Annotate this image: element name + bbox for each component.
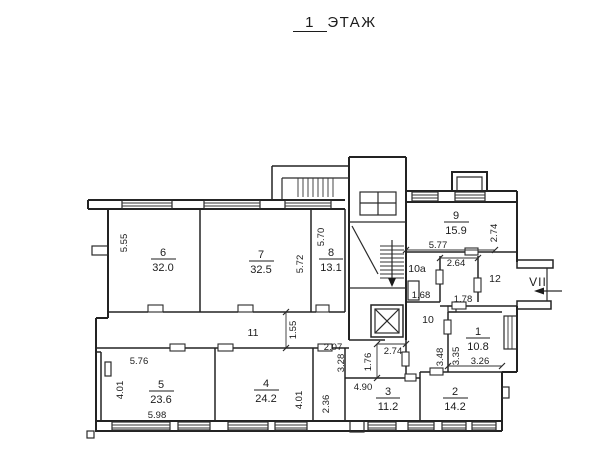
window [412, 192, 438, 201]
space-10a-label: 10а [408, 263, 426, 275]
room-7-number: 7 [258, 249, 264, 261]
room-9-label: 9 15.9 [444, 210, 469, 237]
floor-word: ЭТАЖ [327, 14, 376, 31]
dim-room7-height: 5.72 [295, 255, 306, 274]
room-1-label: 1 10.8 [466, 326, 490, 353]
room-5-label: 5 23.6 [149, 379, 174, 406]
dim-strip-height: 2.36 [321, 395, 332, 414]
dim-nook-width: 2.07 [324, 342, 343, 353]
room-8-area: 13.1 [320, 262, 341, 274]
window [228, 422, 268, 430]
room-5-area: 23.6 [150, 394, 171, 406]
room-5-number: 5 [158, 379, 164, 391]
room-7-area: 32.5 [250, 264, 271, 276]
floor-plan-drawing: 1 ЭТАЖ [0, 0, 607, 458]
dim-room10a-inner: 1.68 [412, 290, 431, 301]
room-8-label: 8 13.1 [319, 247, 343, 274]
room-3-number: 3 [385, 386, 391, 398]
dim-corridor11-width: 1.55 [288, 321, 299, 340]
floor-number: 1 [305, 14, 315, 31]
dim-room1-width: 3.26 [471, 356, 490, 367]
window [472, 422, 496, 430]
room-2-area: 14.2 [444, 401, 465, 413]
room-6-area: 32.0 [152, 262, 173, 274]
room-3-label: 3 11.2 [376, 386, 400, 413]
exterior-stair [272, 166, 349, 199]
room-9-number: 9 [453, 210, 459, 222]
room-6-label: 6 32.0 [151, 247, 176, 274]
room-9-area: 15.9 [445, 225, 466, 237]
stair-arrow [388, 278, 396, 287]
dim-room6-height: 5.55 [119, 234, 130, 253]
dim-room9-width: 5.77 [429, 240, 448, 251]
window [455, 192, 485, 201]
dim-room10a-width: 2.64 [447, 258, 466, 269]
dim-room4-height: 4.01 [294, 391, 305, 410]
room-4-label: 4 24.2 [254, 378, 279, 405]
stairwell [349, 192, 406, 288]
window [178, 422, 210, 430]
dim-vestibule-height: 1.76 [363, 353, 374, 372]
window [408, 422, 434, 430]
dim-room5-width-bottom: 5.98 [148, 410, 167, 421]
window [122, 200, 172, 209]
dim-hall-width: 1.78 [454, 294, 473, 305]
room-1-number: 1 [475, 326, 481, 338]
window [285, 200, 331, 209]
entrance-porch [504, 260, 562, 349]
drawing-title: 1 ЭТАЖ [293, 14, 377, 32]
dim-nook-height: 3.28 [336, 354, 347, 373]
room-4-area: 24.2 [255, 393, 276, 405]
dim-room9-height: 2.74 [489, 224, 500, 243]
window [112, 422, 170, 430]
dim-room5-width-top: 5.76 [130, 356, 149, 367]
room-7-label: 7 32.5 [249, 249, 274, 276]
floor-plan-page: 1 ЭТАЖ [0, 0, 607, 458]
space-12-label: 12 [489, 273, 501, 285]
dim-room5-height: 4.01 [115, 381, 126, 400]
room-4-number: 4 [263, 378, 269, 390]
room-2-label: 2 14.2 [443, 386, 468, 413]
space-10-label: 10 [422, 314, 434, 326]
window [204, 200, 260, 209]
room-6-number: 6 [160, 247, 166, 259]
window [275, 422, 307, 430]
window [368, 422, 396, 430]
dim-room3-width: 4.90 [354, 382, 373, 393]
dim-room1-height: 3.35 [451, 347, 462, 366]
room-1-area: 10.8 [467, 341, 488, 353]
dim-hall10-height: 3.48 [435, 348, 446, 367]
room-3-area: 11.2 [378, 401, 399, 413]
elevator [371, 305, 403, 337]
window [442, 422, 466, 430]
space-11-label: 11 [248, 327, 259, 339]
room-2-number: 2 [452, 386, 458, 398]
dim-room8-height: 5.70 [316, 228, 327, 247]
room-8-number: 8 [328, 247, 334, 259]
dim-stair-width: 2.74 [384, 346, 403, 357]
entrance-vii-label: VII [529, 275, 547, 289]
